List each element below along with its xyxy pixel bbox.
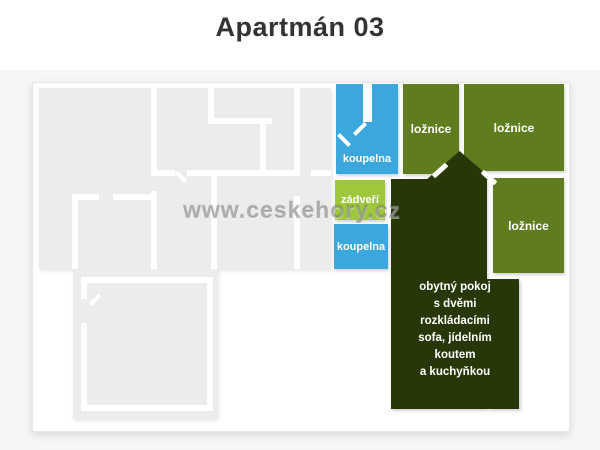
wall-segment [72,194,78,269]
page-title: Apartmán 03 [0,12,600,43]
floorplan-page: Apartmán 03 koupelna [0,0,600,450]
room-label: ložnice [494,121,535,135]
room-label: ložnice [508,219,549,233]
wall-segment [113,194,154,200]
wall-stub-koupelna [363,84,372,122]
wall-segment [76,194,99,200]
room-living-label: obytný pokoj s dvěmi rozkládacími sofa, … [391,279,519,381]
wall-segment [208,88,214,118]
room-loznice-2: ložnice [464,84,564,171]
door-opening [81,299,87,323]
wall-segment [260,124,266,176]
room-label: koupelna [337,241,385,253]
wall-segment [151,191,157,269]
watermark: www.ceskehory.cz [183,197,443,224]
room-label: ložnice [411,122,452,136]
room-loznice-3: ložnice [493,178,564,273]
wall-segment [311,170,331,176]
floorplan-card: koupelna ložnice ložnice zádveří koupeln… [32,82,570,432]
wall-segment [151,88,157,176]
room-label: koupelna [343,153,391,165]
wall-segment [187,170,299,176]
wall-segment [294,88,300,176]
wall-segment [151,170,175,176]
wall-frame-protrusion [81,277,213,411]
room-koupelna-bottom: koupelna [334,224,388,269]
